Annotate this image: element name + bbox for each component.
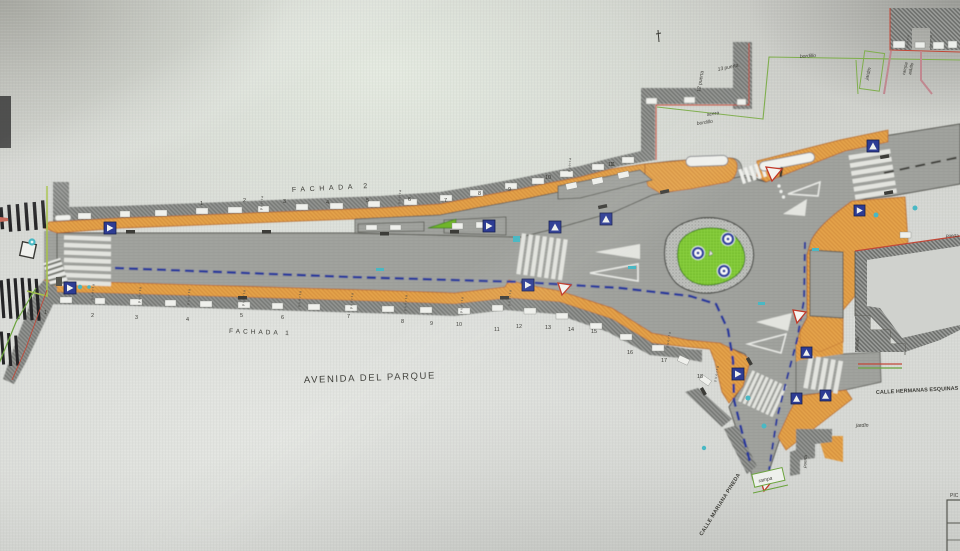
svg-text:8: 8 xyxy=(401,319,404,325)
svg-text:8: 8 xyxy=(478,191,481,197)
svg-text:17: 17 xyxy=(661,358,667,364)
svg-text:18: 18 xyxy=(697,374,703,380)
svg-text:1: 1 xyxy=(200,201,203,207)
svg-text:5: 5 xyxy=(366,198,369,204)
svg-text:6: 6 xyxy=(408,197,411,203)
svg-text:7: 7 xyxy=(347,314,350,320)
svg-text:6: 6 xyxy=(281,315,284,321)
svg-text:15: 15 xyxy=(591,329,597,335)
svg-text:16: 16 xyxy=(627,350,633,356)
svg-text:3: 3 xyxy=(283,199,286,205)
svg-text:7: 7 xyxy=(444,198,447,204)
svg-text:13: 13 xyxy=(545,325,551,331)
svg-text:4: 4 xyxy=(326,200,329,206)
svg-text:4: 4 xyxy=(186,317,189,323)
svg-text:5: 5 xyxy=(240,313,243,319)
svg-text:11: 11 xyxy=(608,162,614,168)
svg-text:10: 10 xyxy=(545,175,551,181)
svg-text:PIC: PIC xyxy=(950,493,959,499)
svg-text:bordillo: bordillo xyxy=(800,53,817,60)
svg-text:1: 1 xyxy=(44,310,47,316)
svg-text:2: 2 xyxy=(243,198,246,204)
svg-text:puerta: puerta xyxy=(945,233,959,238)
svg-text:3: 3 xyxy=(135,315,138,321)
svg-text:14: 14 xyxy=(568,327,574,333)
svg-text:9: 9 xyxy=(508,187,511,193)
svg-text:jardín: jardín xyxy=(855,423,869,429)
svg-text:2: 2 xyxy=(91,313,94,319)
